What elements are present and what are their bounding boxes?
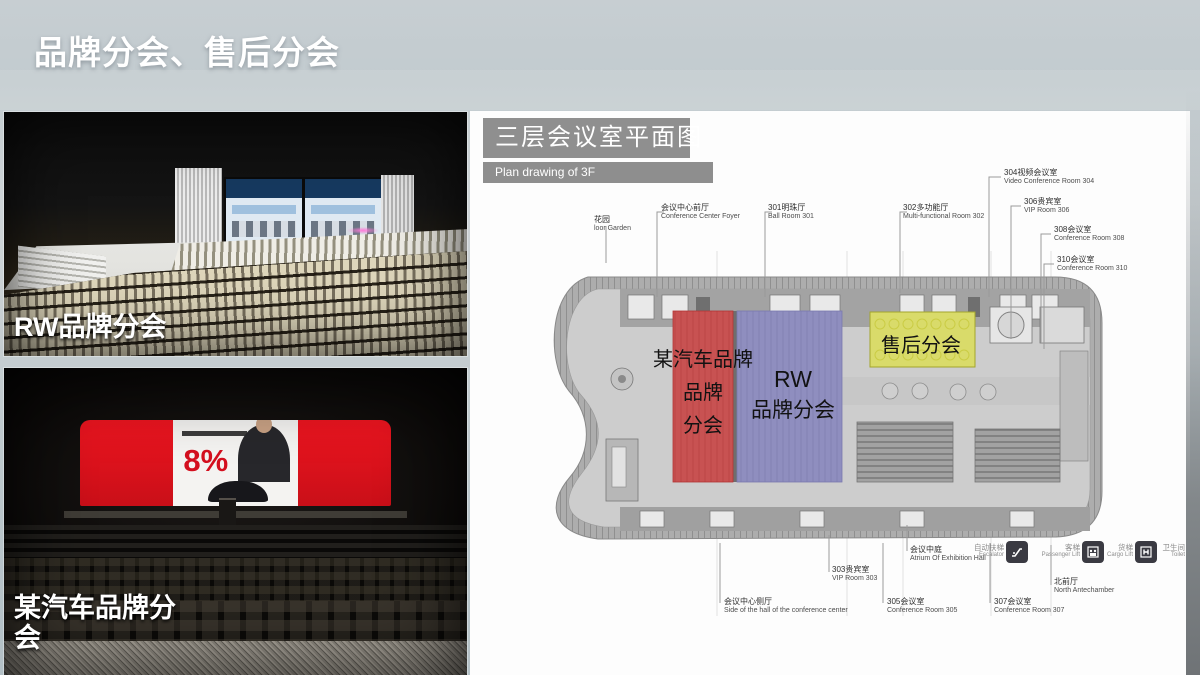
photo-label-rw: RW品牌分会 xyxy=(14,312,167,342)
background-band xyxy=(0,70,1200,110)
presentation-slide: 品牌分会、售后分会 RW品牌分会 xyxy=(0,0,1200,675)
label-room306: 306贵宾室 VIP Room 306 xyxy=(1024,197,1069,216)
label-room301: 301明珠厅 Ball Room 301 xyxy=(768,203,814,222)
label-room308: 308会议室 Conference Room 308 xyxy=(1054,225,1124,244)
label-foyer: 会议中心前厅 Conference Center Foyer xyxy=(661,203,740,222)
label-side-hall: 会议中心侧厅 Side of the hall of the conferenc… xyxy=(724,597,848,616)
slide-title: 品牌分会、售后分会 xyxy=(34,26,340,74)
label-garden: 花园 loor Garden xyxy=(594,215,631,234)
background-right-strip xyxy=(1186,90,1200,675)
rw-region-label: RW 品牌分会 xyxy=(713,364,873,426)
label-room305: 305会议室 Conference Room 305 xyxy=(887,597,957,616)
label-room303: 303贵宾室 VIP Room 303 xyxy=(832,565,877,584)
label-north: 北前厅 North Antechamber xyxy=(1054,577,1114,596)
label-room304: 304视频会议室 Video Conference Room 304 xyxy=(1004,168,1094,187)
label-room310: 310会议室 Conference Room 310 xyxy=(1057,255,1127,274)
label-room307: 307会议室 Conference Room 307 xyxy=(994,597,1064,616)
floor-plan-panel: 三层会议室平面图 Plan drawing of 3F xyxy=(470,111,1190,675)
photo-rw-hall: RW品牌分会 xyxy=(4,112,467,356)
after-sales-region-label: 售后分会 xyxy=(861,329,981,358)
photo-label-brand: 某汽车品牌分会 xyxy=(14,593,182,653)
escalator-icon xyxy=(1006,541,1028,563)
photo-brand-hall: 8% 某汽车品牌分会 xyxy=(4,368,467,675)
label-room302: 302多功能厅 Multi-functional Room 302 xyxy=(903,203,984,222)
